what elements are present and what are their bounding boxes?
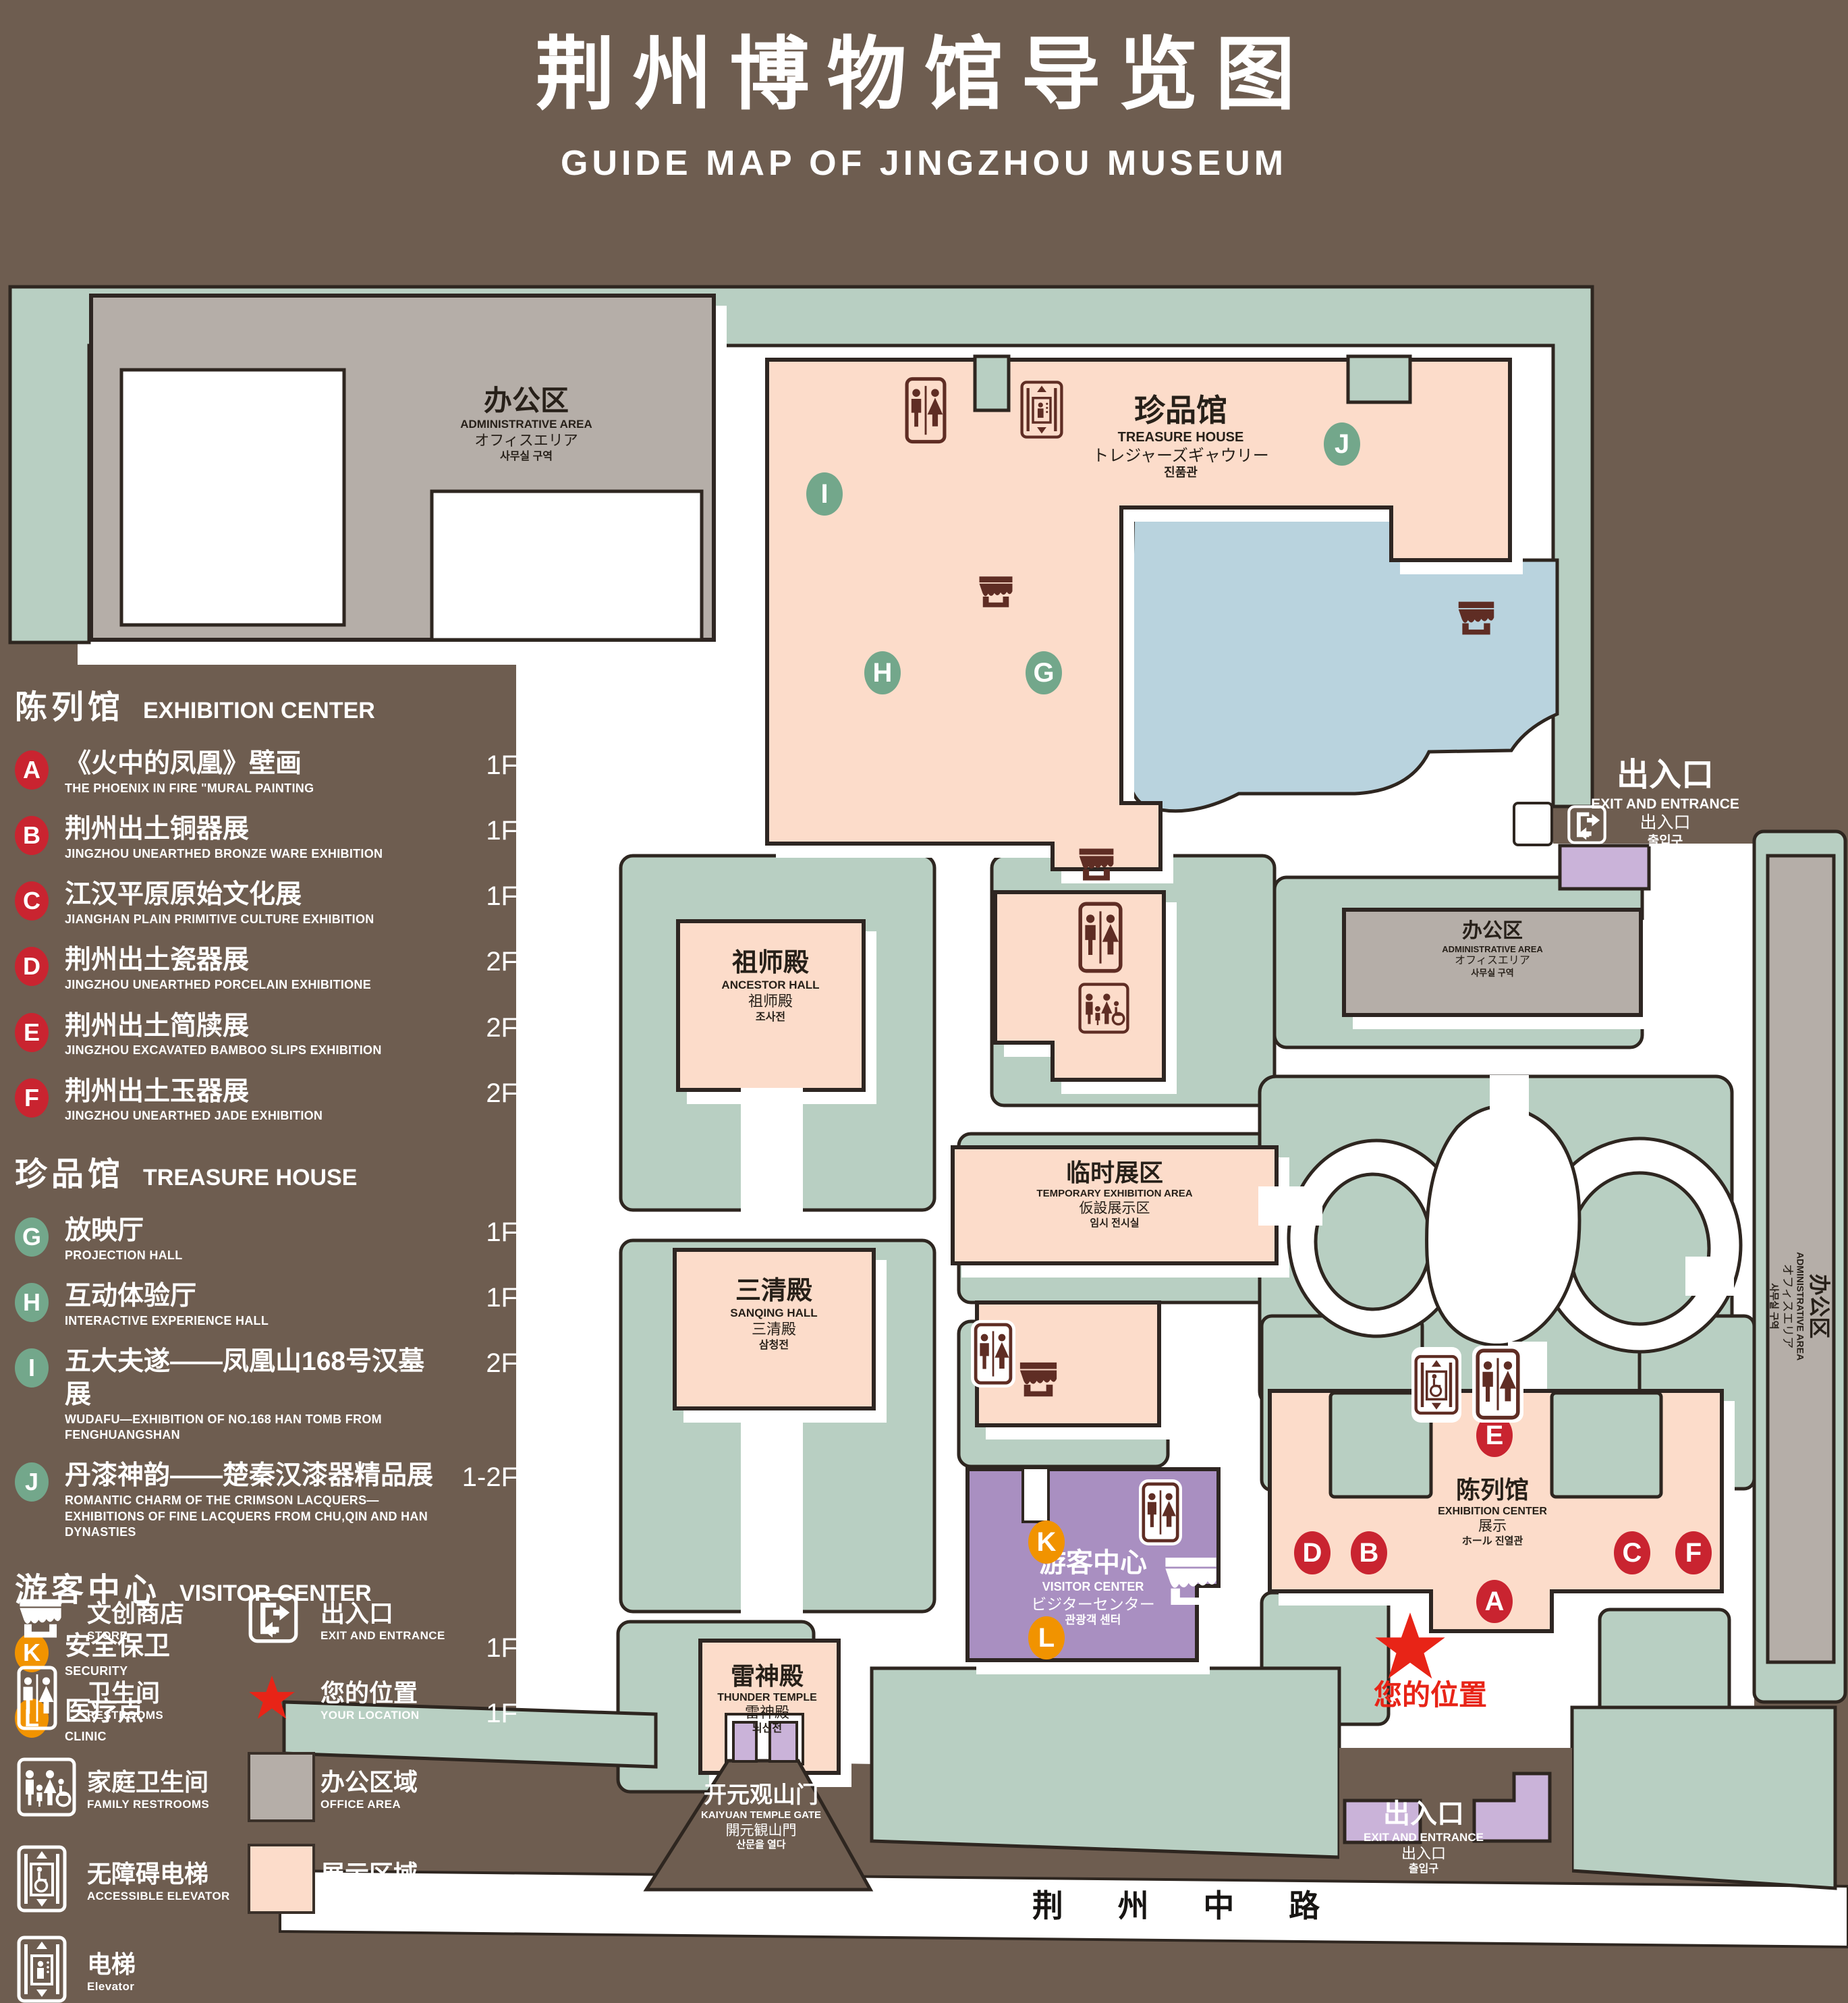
legend-header-treasure: 珍品馆TREASURE HOUSE (15, 1147, 517, 1195)
legend-item-G: G 放映厅PROJECTION HALL 1F (15, 1215, 517, 1263)
exit-top-entrance-block (1560, 846, 1649, 889)
label-thunder-temple: 雷神殿THUNDER TEMPLE 雷神殿뇌신전 (717, 1662, 817, 1736)
legend-symbol-display: 展示区域DISPLAY AREA (320, 1855, 523, 1903)
corridor-ancestor (741, 1088, 803, 1213)
restroom-icon (1475, 1348, 1521, 1420)
label-exhibition-center: 陈列馆EXHIBITION CENTER 展示ホール 진열관 (1438, 1475, 1547, 1547)
store-icon (1017, 1348, 1059, 1410)
legend-symbol-exit: 出入口EXIT AND ENTRANCE (320, 1594, 523, 1643)
legend-marker-A: A (15, 750, 49, 790)
map-marker-K: K (1028, 1520, 1065, 1564)
accessible-elevator-icon (1414, 1350, 1459, 1420)
garden-gap-left (1258, 1186, 1322, 1226)
legend-symbols: 文创商店STORE 出入口EXIT AND ENTRANCE 卫生间RESTRO… (17, 1593, 509, 2003)
restroom-icon (974, 1323, 1013, 1385)
legend-item-C: C 江汉平原原始文化展JIANGHAN PLAIN PRIMITIVE CULT… (15, 879, 517, 927)
legend-item-H: H 互动体验厅INTERACTIVE EXPERIENCE HALL 1F (15, 1280, 517, 1329)
label-admin-area-mid: 办公区ADMINISTRATIVE AREA オフィスエリア사무실 구역 (1442, 919, 1543, 979)
map-marker-G: G (1026, 651, 1062, 694)
label-ancestor-hall: 祖师殿ANCESTOR HALL 祖师殿조사전 (721, 948, 819, 1024)
elevator-icon (1020, 375, 1063, 444)
accessible-elevator-icon (17, 1845, 67, 1913)
admin-courtyard-1 (121, 370, 344, 625)
map-marker-B: B (1351, 1531, 1387, 1574)
restroom-icon (17, 1666, 57, 1730)
map-marker-F: F (1675, 1531, 1712, 1574)
label-exit-bottom: 出入口EXIT AND ENTRANCE 出入口출입구 (1364, 1798, 1484, 1876)
label-sanqing-hall: 三清殿SANQING HALL 三清殿삼청전 (730, 1275, 817, 1352)
legend-marker-B: B (15, 816, 49, 855)
visitor-notch (1023, 1468, 1048, 1522)
store-icon (1162, 1548, 1220, 1614)
family-restroom-icon (17, 1757, 76, 1817)
office-area-swatch (248, 1752, 315, 1822)
legend-item-E: E 荆州出土简牍展JINGZHOU EXCAVATED BAMBOO SLIPS… (15, 1010, 517, 1059)
treasure-notch-1 (975, 356, 1009, 410)
family-restroom-icon (1078, 981, 1129, 1035)
map-marker-E: E (1476, 1414, 1513, 1457)
display-area-swatch (248, 1844, 315, 1914)
garden-loop-right-green (1570, 1173, 1709, 1324)
restroom-icon (1074, 902, 1127, 973)
legend-marker-D: D (15, 947, 49, 986)
garden-gap-right (1685, 1257, 1734, 1296)
restroom-icon (905, 377, 947, 444)
map-marker-I: I (806, 472, 843, 516)
map-marker-C: C (1614, 1531, 1650, 1574)
legend-item-D: D 荆州出土瓷器展JINGZHOU UNEARTHED PORCELAIN EX… (15, 944, 517, 993)
legend-marker-G: G (15, 1217, 49, 1257)
your-location-star-icon (1373, 1610, 1447, 1684)
map-marker-L: L (1028, 1616, 1065, 1659)
label-exit-top: 出入口EXIT AND ENTRANCE 出入口출입구 (1591, 756, 1739, 849)
store-icon (977, 562, 1015, 622)
legend-marker-I: I (15, 1348, 49, 1388)
restroom-icon (1142, 1482, 1179, 1543)
exit-top-corridor (1514, 803, 1552, 845)
label-kaiyuan-gate: 开元观山门KAIYUAN TEMPLE GATE 開元観山門산문을 열다 (701, 1782, 821, 1852)
legend-symbol-elevator: 电梯Elevator (87, 1945, 242, 1994)
legend-item-J: J 丹漆神韵——楚秦汉漆器精品展ROMANTIC CHARM OF THE CR… (15, 1460, 517, 1540)
legend-item-I: I 五大夫遂——凤凰山168号汉墓展WUDAFU—EXHIBITION OF N… (15, 1346, 517, 1443)
corridor-sanqing (741, 1410, 803, 1614)
label-admin-area-right: 办公区ADMINISTRATIVE AREA オフィスエリア사무실 구역 (1768, 1172, 1832, 1442)
store-icon (1077, 834, 1116, 895)
admin-courtyard-2 (432, 491, 702, 640)
store-icon (17, 1595, 64, 1642)
lawn-road-right (1572, 1707, 1835, 1888)
treasure-notch-2 (1348, 356, 1410, 402)
legend-marker-C: C (15, 881, 49, 921)
garden-gap-top (1490, 1075, 1529, 1143)
legend-symbol-family: 家庭卫生间FAMILY RESTROOMS (87, 1763, 242, 1811)
legend-symbol-location: 您的位置YOUR LOCATION (320, 1674, 523, 1722)
legend-header-exhibition: 陈列馆EXHIBITION CENTER (15, 680, 517, 728)
elevator-icon (17, 1936, 67, 2003)
legend-marker-F: F (15, 1078, 49, 1118)
legend-symbol-accessible: 无障碍电梯ACCESSIBLE ELEVATOR (87, 1855, 242, 1903)
map-marker-H: H (864, 651, 901, 694)
legend-symbol-restrooms: 卫生间RESTROOMS (87, 1674, 242, 1722)
map-marker-D: D (1294, 1531, 1331, 1574)
exit-entrance-icon (248, 1593, 299, 1644)
exhibition-court-right (1552, 1393, 1661, 1497)
label-treasure-house: 珍品馆TREASURE HOUSE トレジャーズギャウリー진품관 (1092, 391, 1269, 481)
lawn-visitor-south (872, 1668, 1339, 1857)
label-temporary-exhibition: 临时展区TEMPORARY EXHIBITION AREA 仮設展示区임시 전시… (1036, 1158, 1192, 1230)
legend-item-A: A 《火中的凤凰》壁画THE PHOENIX IN FIRE "MURAL PA… (15, 748, 517, 796)
map-marker-J: J (1324, 422, 1360, 466)
label-road: 荆 州 中 路 (1032, 1887, 1343, 1925)
legend-symbol-store: 文创商店STORE (87, 1594, 242, 1643)
store-icon (1456, 587, 1496, 649)
legend-marker-J: J (15, 1462, 49, 1502)
exit-entrance-icon (1564, 804, 1610, 845)
map-marker-A: A (1476, 1580, 1513, 1623)
legend-marker-H: H (15, 1283, 49, 1322)
legend-item-F: F 荆州出土玉器展JINGZHOU UNEARTHED JADE EXHIBIT… (15, 1076, 517, 1124)
garden-loop-left-green (1316, 1174, 1430, 1309)
legend-item-B: B 荆州出土铜器展JINGZHOU UNEARTHED BRONZE WARE … (15, 813, 517, 862)
label-admin-area: 办公区ADMINISTRATIVE AREA オフィスエリア사무실 구역 (460, 383, 592, 463)
your-location-star-icon (248, 1674, 296, 1722)
legend-symbol-office: 办公区域OFFICE AREA (320, 1763, 523, 1811)
legend-marker-E: E (15, 1013, 49, 1052)
